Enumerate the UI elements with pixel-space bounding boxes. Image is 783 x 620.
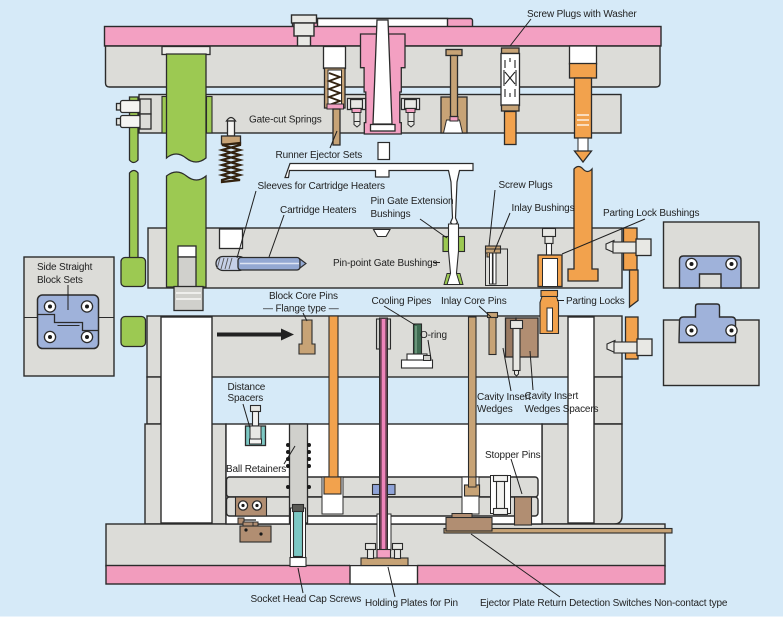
svg-text:Cavity Insert: Cavity Insert <box>525 391 579 402</box>
svg-text:Cavity Insert: Cavity Insert <box>477 392 531 403</box>
svg-text:Screw Plugs with Washer: Screw Plugs with Washer <box>527 9 637 20</box>
svg-text:Ejector Plate Return Detection: Ejector Plate Return Detection Switches … <box>480 598 728 609</box>
svg-text:Cartridge Heaters: Cartridge Heaters <box>280 205 357 216</box>
svg-text:Inlay Bushings: Inlay Bushings <box>512 203 575 214</box>
svg-text:Stopper Pins: Stopper Pins <box>485 450 541 461</box>
svg-text:Holding Plates for Pin: Holding Plates for Pin <box>365 598 458 609</box>
svg-text:Cooling Pipes: Cooling Pipes <box>372 296 432 307</box>
svg-text:Block Core Pins: Block Core Pins <box>269 291 338 302</box>
svg-text:Pin-point Gate Bushings: Pin-point Gate Bushings <box>333 258 438 269</box>
svg-text:Bushings: Bushings <box>371 209 411 220</box>
svg-text:Ball Retainers: Ball Retainers <box>226 464 286 475</box>
svg-text:Runner Ejector Sets: Runner Ejector Sets <box>276 150 363 161</box>
svg-text:Block Sets: Block Sets <box>37 275 83 286</box>
svg-text:Wedges Spacers: Wedges Spacers <box>525 404 599 415</box>
svg-text:O-ring: O-ring <box>420 330 447 341</box>
svg-text:Sleeves for Cartridge Heaters: Sleeves for Cartridge Heaters <box>258 181 386 192</box>
svg-text:Inlay Core Pins: Inlay Core Pins <box>441 296 507 307</box>
svg-text:Screw Plugs: Screw Plugs <box>499 180 553 191</box>
svg-text:Parting Locks: Parting Locks <box>566 296 625 307</box>
svg-text:Distance: Distance <box>228 382 266 393</box>
svg-text:Wedges: Wedges <box>477 404 513 415</box>
svg-text:Parting Lock Bushings: Parting Lock Bushings <box>603 208 700 219</box>
svg-text:Spacers: Spacers <box>228 393 264 404</box>
svg-text:Side Straight: Side Straight <box>37 262 93 273</box>
svg-text:Pin Gate Extension: Pin Gate Extension <box>371 196 454 207</box>
svg-text:Gate-cut Springs: Gate-cut Springs <box>249 115 322 126</box>
svg-text:— Flange type —: — Flange type — <box>263 304 339 315</box>
svg-text:Socket Head Cap Screws: Socket Head Cap Screws <box>251 594 362 605</box>
